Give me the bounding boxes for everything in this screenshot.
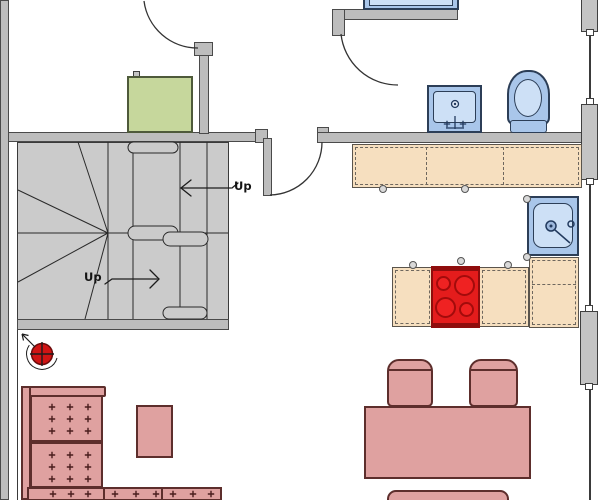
counter-dash <box>355 147 579 185</box>
burner-small <box>459 302 474 317</box>
counter-knobs <box>380 186 531 269</box>
toilet-bowl <box>514 79 542 117</box>
wall-bath-return <box>332 9 345 36</box>
burner-large <box>454 275 475 296</box>
window-icon <box>581 104 598 180</box>
floor-plan: Up Up <box>0 0 600 500</box>
door-arc-top-room <box>144 1 198 48</box>
kitchen-island-left <box>392 267 433 327</box>
wall-bath-top <box>332 9 458 20</box>
window-icon <box>581 0 598 32</box>
bathroom-sink-basin <box>433 91 476 123</box>
toilet-tank <box>510 120 547 133</box>
wall-top-room <box>199 44 209 134</box>
chair-back-line <box>389 369 431 371</box>
up-label-lower-flight: Up <box>84 272 102 284</box>
dining-chair <box>387 359 433 407</box>
counter-dash <box>482 270 526 324</box>
sofa-cushion <box>30 395 103 442</box>
counter-dash <box>532 260 576 325</box>
wall-right <box>589 0 591 500</box>
counter-divider <box>532 284 576 285</box>
kitchen-sink-basin <box>533 203 573 248</box>
cooktop-icon <box>431 266 480 328</box>
wall-left <box>0 0 9 500</box>
kitchen-counter-top <box>352 144 582 188</box>
wall-kitchen-top <box>317 132 591 143</box>
kitchen-island-right <box>479 267 529 327</box>
sofa-chaise <box>27 487 222 500</box>
bench <box>387 490 509 500</box>
counter-dash <box>395 270 430 324</box>
chair-back-line <box>471 369 516 371</box>
wall-stair-bottom <box>17 319 229 330</box>
counter-divider <box>426 147 427 185</box>
dining-chair <box>469 359 518 407</box>
side-table <box>136 405 173 458</box>
door-leaf-hall <box>263 138 272 196</box>
wall-hall-top <box>8 132 257 142</box>
green-cabinet <box>127 76 193 133</box>
door-arc-hall <box>270 142 322 195</box>
window-icon <box>580 311 598 385</box>
staircase <box>17 142 229 320</box>
dining-table <box>364 406 531 479</box>
ceiling-fixture-icon <box>22 334 57 369</box>
window-nub <box>586 178 594 185</box>
window-nub <box>586 29 594 36</box>
sofa-seam <box>103 489 105 499</box>
burner-large <box>435 297 456 318</box>
door-arc-bathroom <box>341 34 398 85</box>
up-label-upper-flight: Up <box>234 181 252 193</box>
sofa-seam <box>161 489 163 499</box>
door-hinge-post <box>194 42 213 56</box>
window-nub <box>585 383 593 390</box>
kitchen-counter-right <box>529 257 579 328</box>
counter-divider <box>503 147 504 185</box>
bathtub-inner <box>369 0 453 6</box>
burner-small <box>436 276 451 291</box>
sofa-cushion <box>30 442 103 488</box>
